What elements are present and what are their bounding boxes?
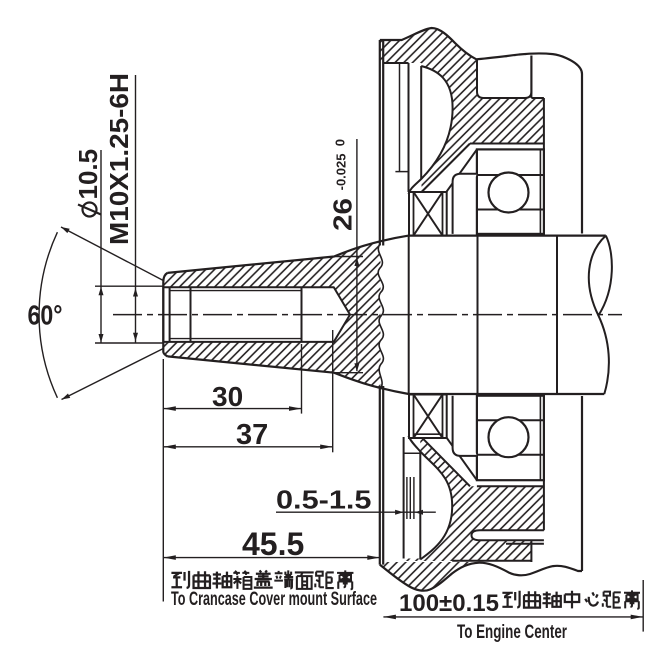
- svg-text:26: 26: [327, 198, 357, 231]
- svg-text:0: 0: [332, 139, 347, 146]
- svg-text:37: 37: [236, 419, 268, 451]
- svg-text:To Crancase Cover mount Surfac: To Crancase Cover mount Surface: [171, 589, 377, 610]
- svg-text:60°: 60°: [28, 300, 63, 331]
- svg-text:10.5: 10.5: [73, 149, 103, 200]
- svg-text:100±0.15: 100±0.15: [399, 590, 499, 617]
- svg-text:0.5-1.5: 0.5-1.5: [276, 485, 372, 515]
- svg-text:-0.025: -0.025: [333, 154, 348, 191]
- svg-text:45.5: 45.5: [242, 526, 304, 562]
- svg-text:M10X1.25-6H: M10X1.25-6H: [104, 73, 134, 245]
- svg-text:30: 30: [212, 381, 243, 412]
- svg-text:To Engine Center: To Engine Center: [457, 622, 567, 643]
